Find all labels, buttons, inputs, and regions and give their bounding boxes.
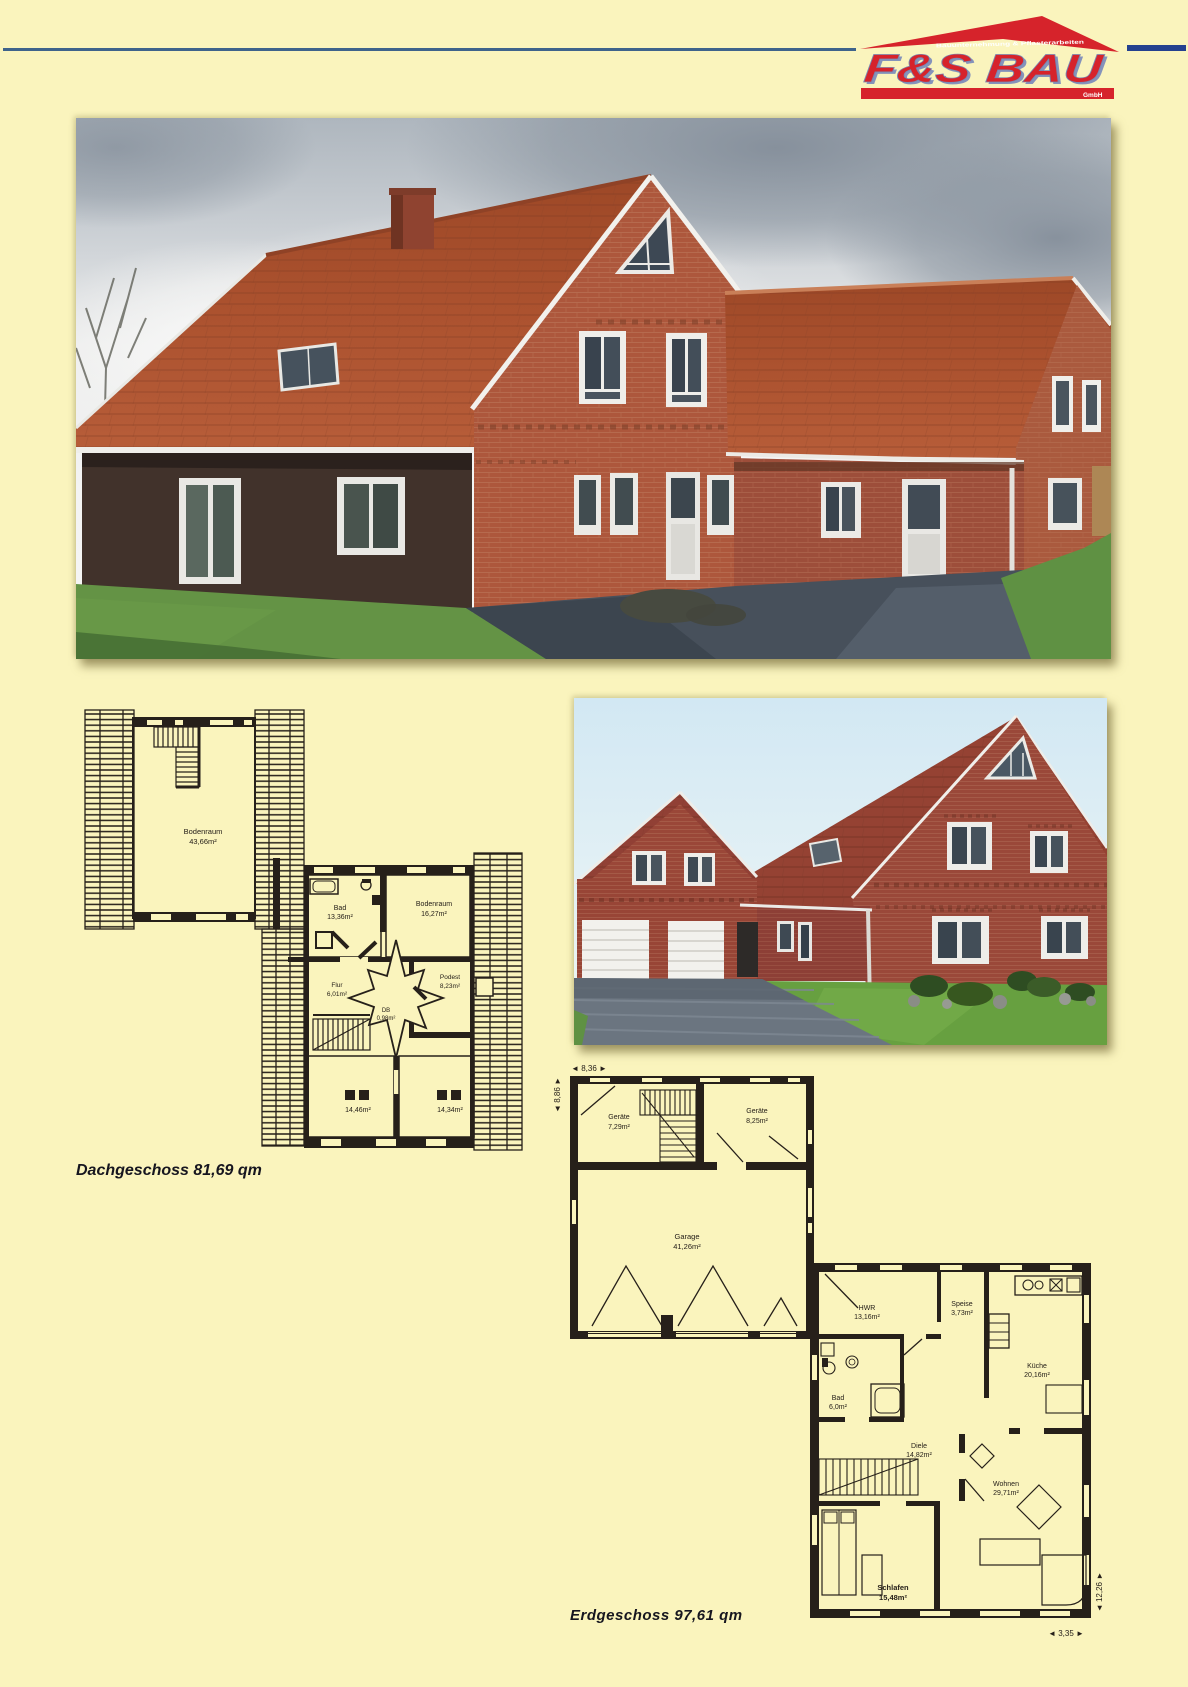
svg-text:14,34m²: 14,34m² [437, 1107, 463, 1114]
svg-text:F&S BAU: F&S BAU [862, 47, 1106, 91]
svg-text:14,46m²: 14,46m² [345, 1107, 371, 1114]
svg-text:15,48m²: 15,48m² [879, 1593, 907, 1602]
svg-text:13,36m²: 13,36m² [327, 914, 353, 921]
svg-text:Garage: Garage [674, 1232, 699, 1241]
svg-text:6,01m²: 6,01m² [327, 991, 348, 998]
svg-text:14,82m²: 14,82m² [906, 1452, 932, 1459]
svg-text:Podest: Podest [440, 974, 460, 981]
svg-text:GmbH: GmbH [1083, 92, 1103, 99]
svg-text:Küche: Küche [1027, 1363, 1047, 1370]
svg-text:◄ 8,86 ►: ◄ 8,86 ► [553, 1077, 562, 1113]
svg-text:◄ 12,26 ►: ◄ 12,26 ► [1095, 1572, 1104, 1612]
svg-text:DB: DB [382, 1008, 390, 1014]
svg-text:Speise: Speise [951, 1301, 973, 1308]
svg-text:Diele: Diele [911, 1443, 927, 1450]
svg-text:Wohnen: Wohnen [993, 1481, 1019, 1488]
svg-text:20,16m²: 20,16m² [1024, 1372, 1050, 1379]
svg-text:6,0m²: 6,0m² [829, 1404, 848, 1411]
svg-text:43,66m²: 43,66m² [189, 837, 217, 846]
svg-text:Geräte: Geräte [608, 1114, 630, 1121]
svg-text:Bad: Bad [832, 1395, 845, 1402]
svg-text:8,23m²: 8,23m² [440, 983, 461, 990]
svg-text:Geräte: Geräte [746, 1108, 768, 1115]
svg-text:Schlafen: Schlafen [877, 1583, 909, 1592]
svg-text:13,16m²: 13,16m² [854, 1314, 880, 1321]
svg-text:Bodenraum: Bodenraum [416, 901, 452, 908]
svg-text:◄ 3,35 ►: ◄ 3,35 ► [1048, 1629, 1084, 1638]
svg-text:HWR: HWR [859, 1305, 876, 1312]
svg-text:16,27m²: 16,27m² [421, 911, 447, 918]
svg-text:29,71m²: 29,71m² [993, 1490, 1019, 1497]
svg-text:8,25m²: 8,25m² [746, 1118, 768, 1125]
svg-text:Bodenraum: Bodenraum [184, 827, 223, 836]
svg-text:0,98m²: 0,98m² [377, 1016, 396, 1022]
svg-text:Flur: Flur [331, 982, 343, 989]
svg-text:3,73m²: 3,73m² [951, 1310, 973, 1317]
svg-text:41,26m²: 41,26m² [673, 1242, 701, 1251]
svg-text:7,29m²: 7,29m² [608, 1124, 630, 1131]
svg-text:◄ 8,36 ►: ◄ 8,36 ► [571, 1064, 607, 1073]
svg-text:Bad: Bad [334, 905, 347, 912]
